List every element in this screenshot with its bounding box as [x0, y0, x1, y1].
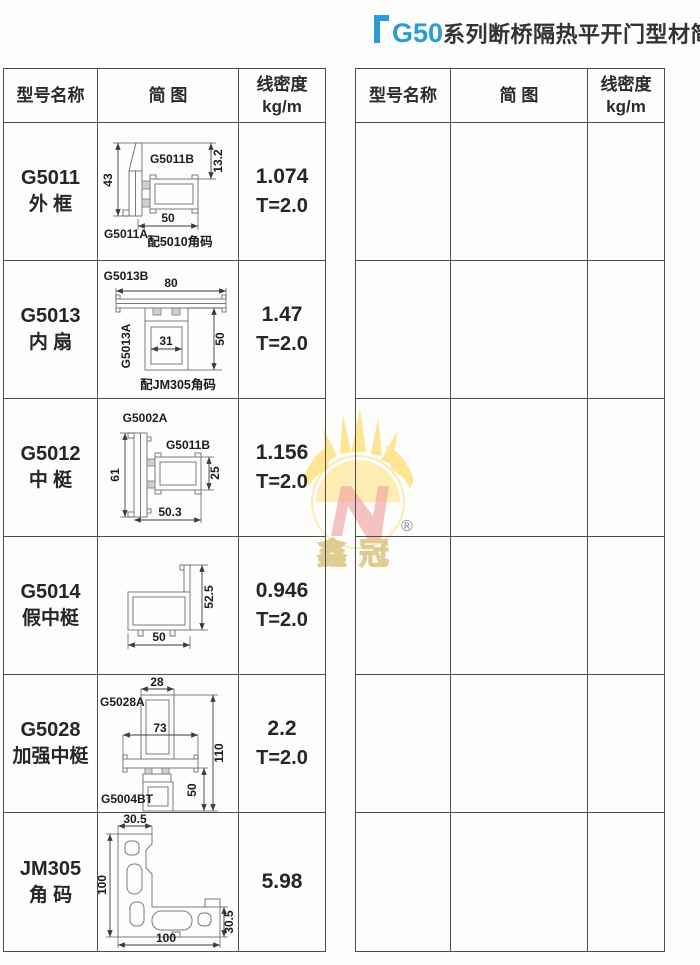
part-label: G5002A: [123, 411, 168, 425]
density-cell: 0.946 T=2.0: [239, 537, 325, 675]
empty-diagram-cell: [451, 813, 588, 951]
header-model: 型号名称: [356, 69, 451, 123]
catalog-page: { "title": { "highlight": "G50", "text":…: [0, 0, 700, 965]
part-label: G5013B: [104, 269, 149, 283]
dim-label: 61: [108, 468, 122, 482]
profile-drawing-g5013: 80 31 50 G5013B G5013A 配JM305角码: [98, 261, 238, 398]
profile-table-left: 型号名称 简 图 线密度 kg/m G5011 外 框: [3, 68, 326, 952]
profile-drawing-g5014: 52.5 50: [98, 537, 238, 674]
dim-label: 30.5: [222, 909, 236, 933]
fitting-note: 配JM305角码: [140, 377, 216, 392]
model-cell: G5014 假中梃: [4, 537, 98, 675]
empty-model-cell: [356, 813, 451, 951]
profile-drawing-g5028: 28 73 110 50 G5028A G5004BT: [98, 675, 238, 812]
density-cell: 1.156 T=2.0: [239, 399, 325, 537]
empty-density-cell: [588, 813, 664, 951]
dim-label: 50: [161, 211, 175, 225]
empty-density-cell: [588, 675, 664, 813]
dim-label: 28: [150, 675, 164, 689]
part-label: G5028A: [100, 695, 145, 709]
model-cell: G5028 加强中梃: [4, 675, 98, 813]
diagram-cell: 28 73 110 50 G5028A G5004BT: [98, 675, 239, 813]
dim-label: 52.5: [202, 585, 216, 609]
diagram-cell: 43 13.2 50 G5011B G5011A 配5010角码: [98, 123, 239, 261]
empty-diagram-cell: [451, 675, 588, 813]
title-description: 系列断桥隔热平开门型材简图: [443, 22, 700, 47]
part-label: G5004BT: [101, 792, 154, 806]
empty-model-cell: [356, 399, 451, 537]
profile-drawing-g5012: 61 25 50.3 G5002A G5011B: [98, 399, 238, 536]
dim-label: 50.3: [158, 505, 182, 519]
dim-label: 50: [213, 332, 227, 346]
model-cell: G5013 内 扇: [4, 261, 98, 399]
profile-drawing-jm305: 30.5 100 30.5 100: [98, 814, 238, 951]
dim-label: 50: [185, 783, 199, 797]
empty-density-cell: [588, 261, 664, 399]
empty-density-cell: [588, 537, 664, 675]
dim-label: 100: [156, 931, 176, 945]
empty-model-cell: [356, 123, 451, 261]
model-cell: G5011 外 框: [4, 123, 98, 261]
part-label: G5011B: [150, 152, 194, 166]
part-label: G5011B: [166, 438, 210, 452]
title-corner-bracket-left-icon: [374, 15, 389, 43]
profile-outline: [128, 565, 190, 636]
header-diagram: 简 图: [451, 69, 588, 123]
dim-label: 100: [98, 874, 109, 894]
part-label: G5013A: [119, 323, 133, 368]
density-cell: 1.47 T=2.0: [239, 261, 325, 399]
profile-table-right: 型号名称 简 图 线密度 kg/m: [355, 68, 665, 952]
empty-density-cell: [588, 123, 664, 261]
header-density: 线密度 kg/m: [239, 69, 325, 123]
profile-outline: [118, 834, 220, 937]
empty-model-cell: [356, 675, 451, 813]
profile-drawing-g5011: 43 13.2 50 G5011B G5011A 配5010角码: [98, 123, 238, 260]
page-title: G50系列断桥隔热平开门型材简图: [374, 13, 700, 58]
dim-label: 13.2: [211, 149, 225, 173]
diagram-cell: 61 25 50.3 G5002A G5011B: [98, 399, 239, 537]
dim-label: 31: [159, 334, 173, 348]
header-density: 线密度 kg/m: [588, 69, 664, 123]
empty-diagram-cell: [451, 261, 588, 399]
dim-label: 43: [101, 173, 115, 187]
empty-model-cell: [356, 261, 451, 399]
density-cell: 5.98: [239, 813, 325, 951]
diagram-cell: 80 31 50 G5013B G5013A 配JM305角码: [98, 261, 239, 399]
empty-density-cell: [588, 399, 664, 537]
dim-label: 110: [212, 743, 226, 763]
empty-diagram-cell: [451, 537, 588, 675]
density-cell: 1.074 T=2.0: [239, 123, 325, 261]
model-cell: JM305 角 码: [4, 813, 98, 951]
diagram-cell: 52.5 50: [98, 537, 239, 675]
empty-model-cell: [356, 537, 451, 675]
diagram-cell: 30.5 100 30.5 100: [98, 813, 239, 951]
dim-label: 80: [164, 276, 178, 290]
header-diagram: 简 图: [98, 69, 239, 123]
empty-diagram-cell: [451, 123, 588, 261]
part-label: G5011A: [104, 227, 148, 241]
dim-label: 30.5: [123, 814, 147, 826]
dim-label: 50: [152, 630, 166, 644]
title-text: G50系列断桥隔热平开门型材简图: [392, 13, 700, 58]
header-model: 型号名称: [4, 69, 98, 123]
empty-diagram-cell: [451, 399, 588, 537]
fitting-note: 配5010角码: [147, 234, 212, 249]
dim-label: 25: [208, 466, 222, 480]
density-cell: 2.2 T=2.0: [239, 675, 325, 813]
title-series-code: G50: [392, 18, 443, 48]
model-cell: G5012 中 梃: [4, 399, 98, 537]
dim-label: 73: [153, 721, 167, 735]
